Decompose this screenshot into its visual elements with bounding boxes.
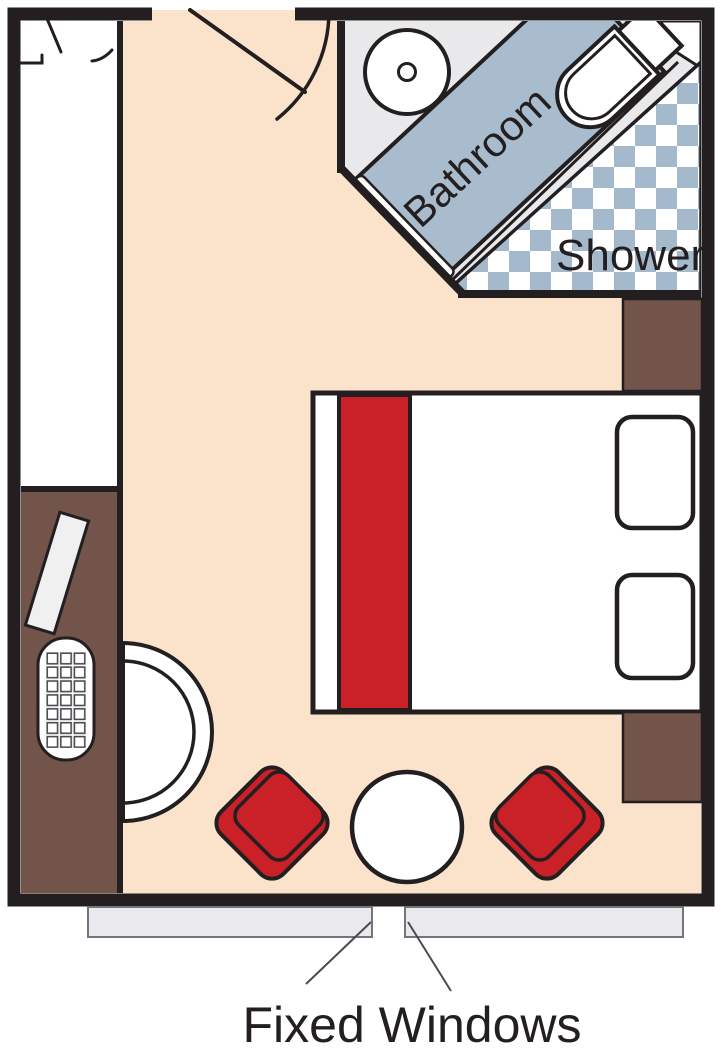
- nightstand-bottom: [623, 712, 702, 802]
- nightstand-top: [623, 299, 702, 391]
- coffee-table: [352, 772, 462, 882]
- bed: [313, 393, 702, 712]
- bed-runner: [339, 395, 410, 710]
- entry-door-opening: [152, 0, 295, 21]
- telephone-keypad: [38, 638, 94, 760]
- floor-plan-svg: Bathroom Shower: [0, 0, 726, 1055]
- shower-label: Shower: [556, 231, 705, 280]
- washbasin: [365, 30, 449, 114]
- washbasin-drain: [399, 64, 416, 81]
- bathroom-wall-bottom: [458, 290, 701, 298]
- closet-bottom-wall: [21, 486, 117, 492]
- fixed-window-left: [88, 907, 372, 937]
- bathroom-wall-left: [337, 21, 345, 173]
- fixed-windows-label: Fixed Windows: [243, 997, 582, 1053]
- pillow-top: [617, 417, 693, 528]
- floor-plan: Bathroom Shower: [0, 0, 726, 1055]
- closet: [21, 21, 117, 489]
- fixed-window-right: [405, 907, 683, 937]
- pillow-bottom: [617, 575, 693, 678]
